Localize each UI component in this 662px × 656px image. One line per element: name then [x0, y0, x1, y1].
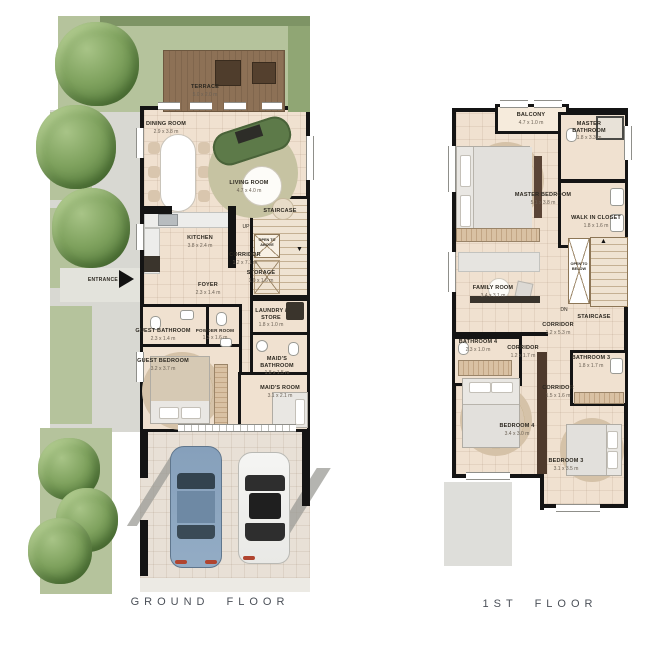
pillow [469, 382, 491, 393]
window [500, 100, 528, 108]
stair-direction-arrow-icon: ▲ [600, 238, 607, 245]
window [306, 136, 314, 180]
kitchen-appliance [144, 256, 160, 272]
pillow [607, 431, 618, 449]
sink [256, 340, 268, 352]
master-wardrobe [456, 228, 540, 242]
dining-table [160, 134, 196, 212]
guest-wardrobe [214, 364, 228, 428]
wall-segment [140, 206, 172, 214]
kitchen-label: KITCHEN 3.8 x 2.4 m [165, 235, 235, 249]
laundry-label: LAUNDRY / STORE 1.8 x 1.0 m [249, 308, 293, 328]
driveway-wall [140, 520, 148, 576]
dn-label: DN [556, 306, 572, 313]
bedroom4-label: BEDROOM 4 3.4 x 3.0 m [487, 423, 547, 437]
pillow [159, 407, 179, 419]
hedge-right [288, 26, 310, 112]
storage-label: STORAGE 1.0 x 1.6 m [238, 270, 284, 284]
master-bedroom-label: MASTER BEDROOM 5.1 x 3.8 m [512, 192, 574, 206]
tree [36, 105, 116, 189]
dining-chair [148, 190, 160, 202]
entrance-label: ENTRANCE [80, 277, 118, 283]
terrace-lounge-1 [215, 60, 241, 86]
maids-bathroom-label: MAID'S BATHROOM 1.8 x 1.5 m [250, 356, 304, 376]
living-room-label: LIVING ROOM 4.7 x 4.0 m [214, 180, 284, 194]
sink [180, 310, 194, 320]
maids-room-label: MAID'S ROOM 3.1 x 2.1 m [248, 385, 312, 399]
first-staircase-label: STAIRCASE [566, 314, 622, 321]
pillow [181, 407, 201, 419]
car-roof [177, 491, 215, 523]
bedroom3-wardrobe [574, 392, 624, 404]
car-rear-glass [177, 525, 215, 539]
stair-direction-arrow-icon: ▼ [296, 246, 303, 253]
pillow [607, 451, 618, 469]
dining-chair [148, 166, 160, 178]
open-to-above-label: OPEN TO ABOVE [254, 238, 280, 247]
taillight [243, 556, 255, 560]
window [262, 102, 282, 110]
tree [55, 22, 139, 106]
dining-chair [198, 142, 210, 154]
walk-in-closet-label: WALK IN CLOSET 1.8 x 1.6 m [566, 215, 626, 229]
window [136, 224, 144, 250]
bathroom4-label: BATHROOM 4 2.3 x 1.0 m [450, 339, 506, 353]
bedroom4-bed [462, 378, 520, 448]
family-sofa [458, 252, 540, 272]
window [624, 126, 632, 160]
corridor-main-label: CORRIDOR 1.2 x 5.3 m [534, 322, 582, 336]
kitchen-sink [158, 214, 178, 226]
up-label: UP [240, 223, 252, 230]
corridor-label: CORRIDOR 1.2 x 7.1 m [222, 252, 268, 266]
dining-chair [198, 190, 210, 202]
terrace-lounge-2 [252, 62, 276, 84]
bathroom3-label: BATHROOM 3 1.8 x 1.7 m [563, 355, 619, 369]
terrace-label: TERRACE 5.0 x 2.0 m [170, 84, 240, 98]
car-blue [170, 446, 222, 568]
duvet [473, 147, 532, 235]
pillow [295, 399, 305, 425]
balcony-label: BALCONY 4.7 x 1.0 m [496, 112, 566, 126]
dining-room-label: DINING ROOM 2.9 x 3.8 m [131, 121, 201, 135]
tree [28, 518, 92, 584]
tree [52, 188, 130, 268]
first-floor-title: 1ST FLOOR [460, 598, 620, 610]
hedge-top [100, 16, 310, 26]
planting-strip-3 [50, 306, 92, 424]
window [556, 504, 600, 512]
car-windshield [245, 475, 285, 491]
driveway-wall [302, 430, 310, 506]
guest-bedroom-label: GUEST BEDROOM 3.2 x 3.7 m [128, 358, 198, 372]
ground-floor-title: GROUND FLOOR [110, 596, 310, 608]
window [448, 146, 456, 192]
curb-strip [140, 578, 310, 592]
bed-bench [534, 156, 542, 218]
toilet [216, 312, 227, 326]
taillight [175, 560, 187, 564]
toilet [288, 342, 299, 356]
window [466, 472, 510, 480]
pillow [460, 155, 471, 187]
powder-room-label: POWDER ROOM 1.3 x 1.6 m [194, 328, 236, 341]
foyer-label: FOYER 2.3 x 1.4 m [178, 282, 238, 296]
car-white [238, 452, 290, 564]
floorplan-canvas: ENTRANCE TERRACE 5.0 x 2.0 m DINING ROOM… [0, 0, 662, 656]
first-staircase-treads [590, 237, 628, 307]
garage-threshold [178, 424, 296, 432]
entrance-arrow-icon [119, 270, 134, 288]
bedroom3-label: BEDROOM 3 3.1 x 3.5 m [536, 458, 596, 472]
window [190, 102, 212, 110]
window [224, 102, 246, 110]
corridor-3-label: CORRIDOR 1.5 x 1.6 m [536, 385, 580, 399]
pillow [460, 195, 471, 227]
vanity-sink [610, 188, 624, 206]
master-bathroom-label: MASTER BATHROOM 1.8 x 3.3 m [560, 121, 618, 141]
open-to-below-label: OPEN TO BELOW [568, 262, 590, 271]
family-room-label: FAMILY ROOM 3.4 x 3.1 m [458, 285, 528, 299]
lower-roof [444, 482, 512, 566]
master-bed [456, 146, 530, 236]
dining-chair [148, 142, 160, 154]
staircase-label: STAIRCASE [252, 208, 308, 215]
car-sunroof [249, 493, 281, 519]
car-rear-glass [245, 523, 285, 541]
car-windshield [177, 473, 215, 489]
driveway-wall [140, 430, 148, 478]
pillow [491, 382, 513, 393]
window [158, 102, 180, 110]
window [448, 252, 456, 292]
window [534, 100, 562, 108]
corridor-2-label: CORRIDOR 1.2 x 1.7 m [501, 345, 545, 359]
taillight [205, 560, 217, 564]
wardrobe-wall [537, 352, 547, 474]
guest-bathroom-label: GUEST BATHROOM 2.3 x 1.4 m [128, 328, 198, 342]
bathtub [458, 360, 512, 376]
